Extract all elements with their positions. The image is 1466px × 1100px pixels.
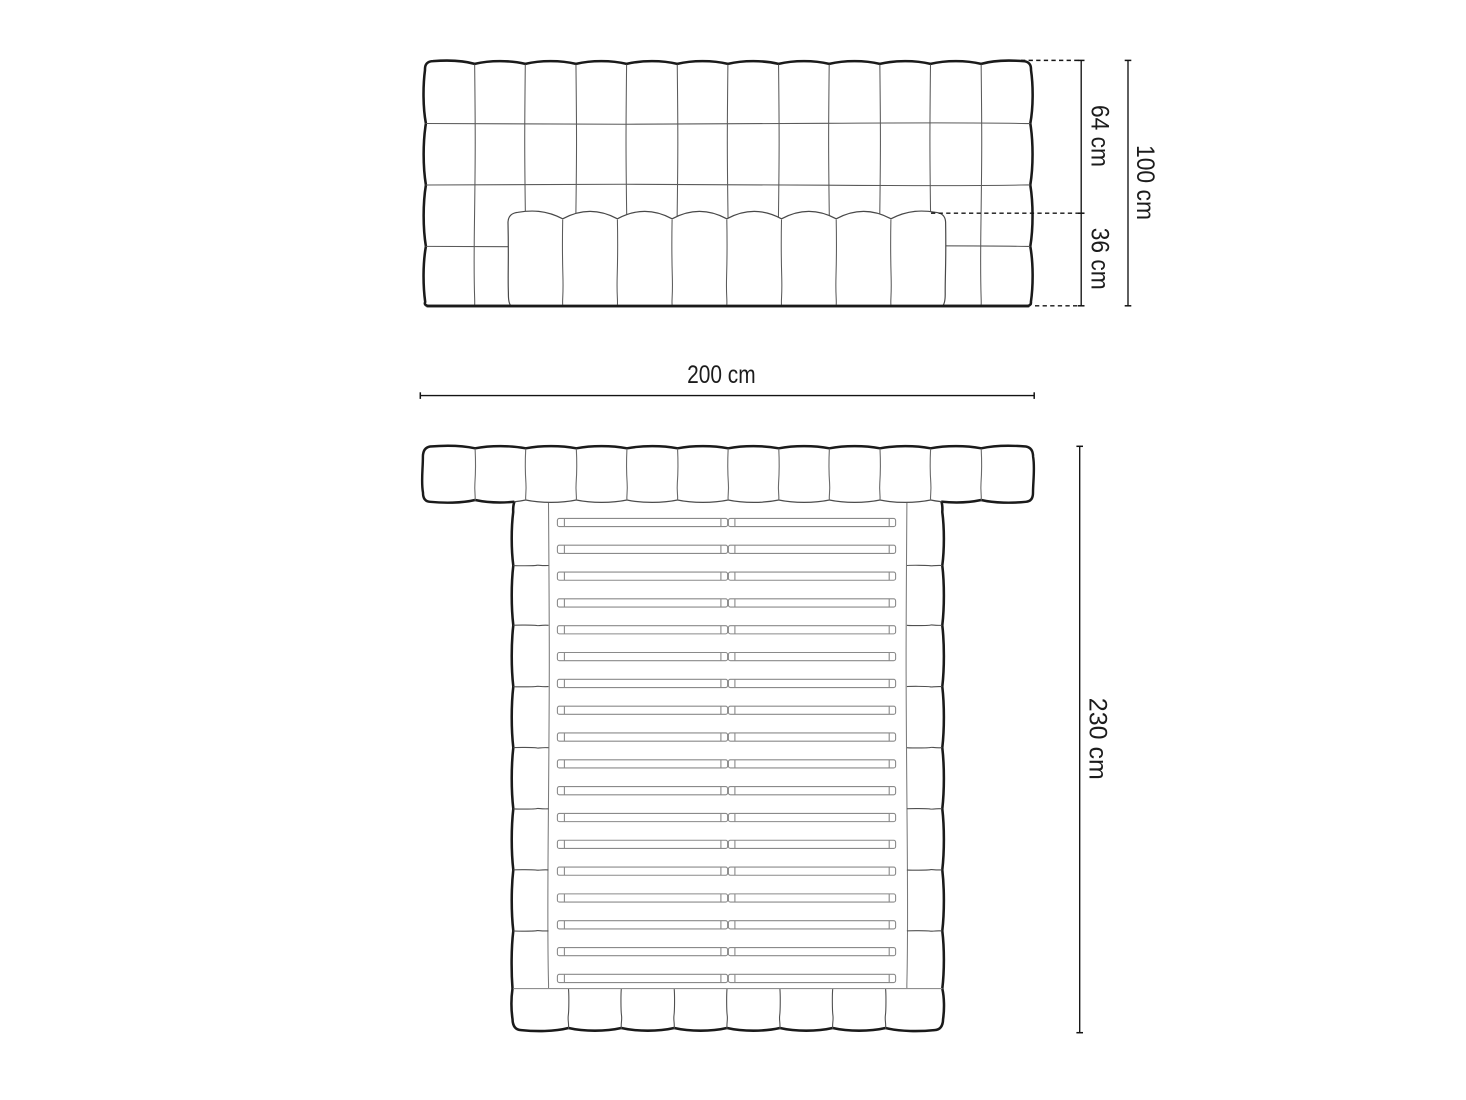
svg-text:64 cm: 64 cm <box>1086 105 1113 167</box>
svg-text:100 cm: 100 cm <box>1131 145 1158 220</box>
svg-text:230 cm: 230 cm <box>1084 698 1111 780</box>
svg-text:200 cm: 200 cm <box>687 362 756 389</box>
svg-text:36 cm: 36 cm <box>1086 228 1113 290</box>
